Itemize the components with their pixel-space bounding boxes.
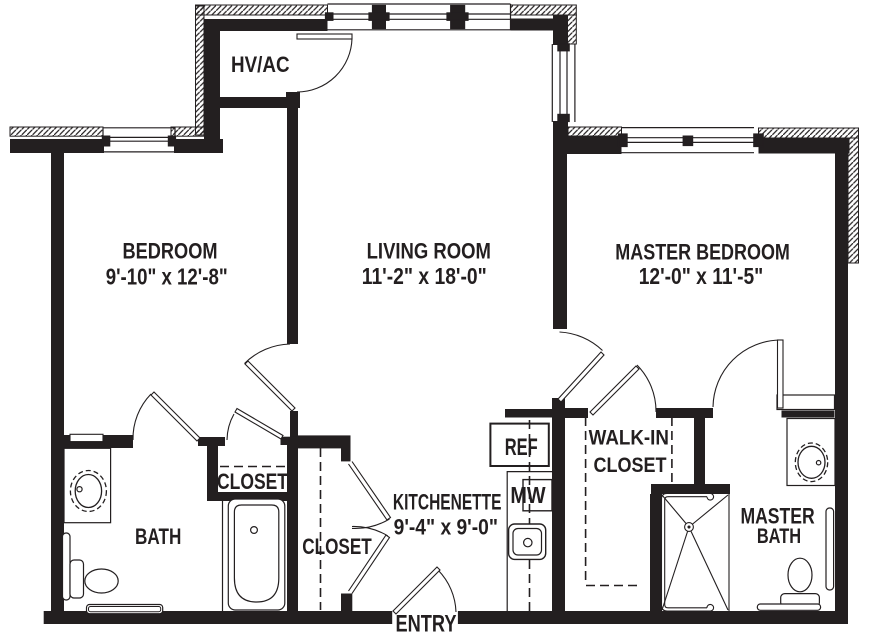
svg-text:BATH: BATH bbox=[135, 524, 181, 549]
svg-text:MW: MW bbox=[510, 482, 545, 508]
svg-text:BATH: BATH bbox=[757, 525, 801, 548]
svg-text:CLOSET: CLOSET bbox=[302, 534, 372, 559]
svg-text:MASTER BEDROOM: MASTER BEDROOM bbox=[615, 240, 790, 265]
svg-text:LIVING ROOM: LIVING ROOM bbox=[367, 238, 491, 263]
svg-text:REF: REF bbox=[505, 434, 538, 461]
svg-text:HV/AC: HV/AC bbox=[231, 52, 290, 77]
svg-text:11'-2" x 18'-0": 11'-2" x 18'-0" bbox=[362, 263, 487, 289]
svg-text:WALK-IN: WALK-IN bbox=[589, 425, 669, 449]
svg-text:KITCHENETTE: KITCHENETTE bbox=[393, 490, 502, 515]
svg-text:CLOSET: CLOSET bbox=[217, 469, 288, 494]
svg-text:12'-0" x 11'-5": 12'-0" x 11'-5" bbox=[639, 263, 764, 289]
svg-text:ENTRY: ENTRY bbox=[396, 611, 457, 637]
svg-text:BEDROOM: BEDROOM bbox=[123, 238, 218, 263]
svg-text:CLOSET: CLOSET bbox=[594, 453, 667, 477]
svg-text:9'-10" x 12'-8": 9'-10" x 12'-8" bbox=[106, 264, 228, 290]
svg-text:9'-4" x 9'-0": 9'-4" x 9'-0" bbox=[394, 515, 498, 540]
